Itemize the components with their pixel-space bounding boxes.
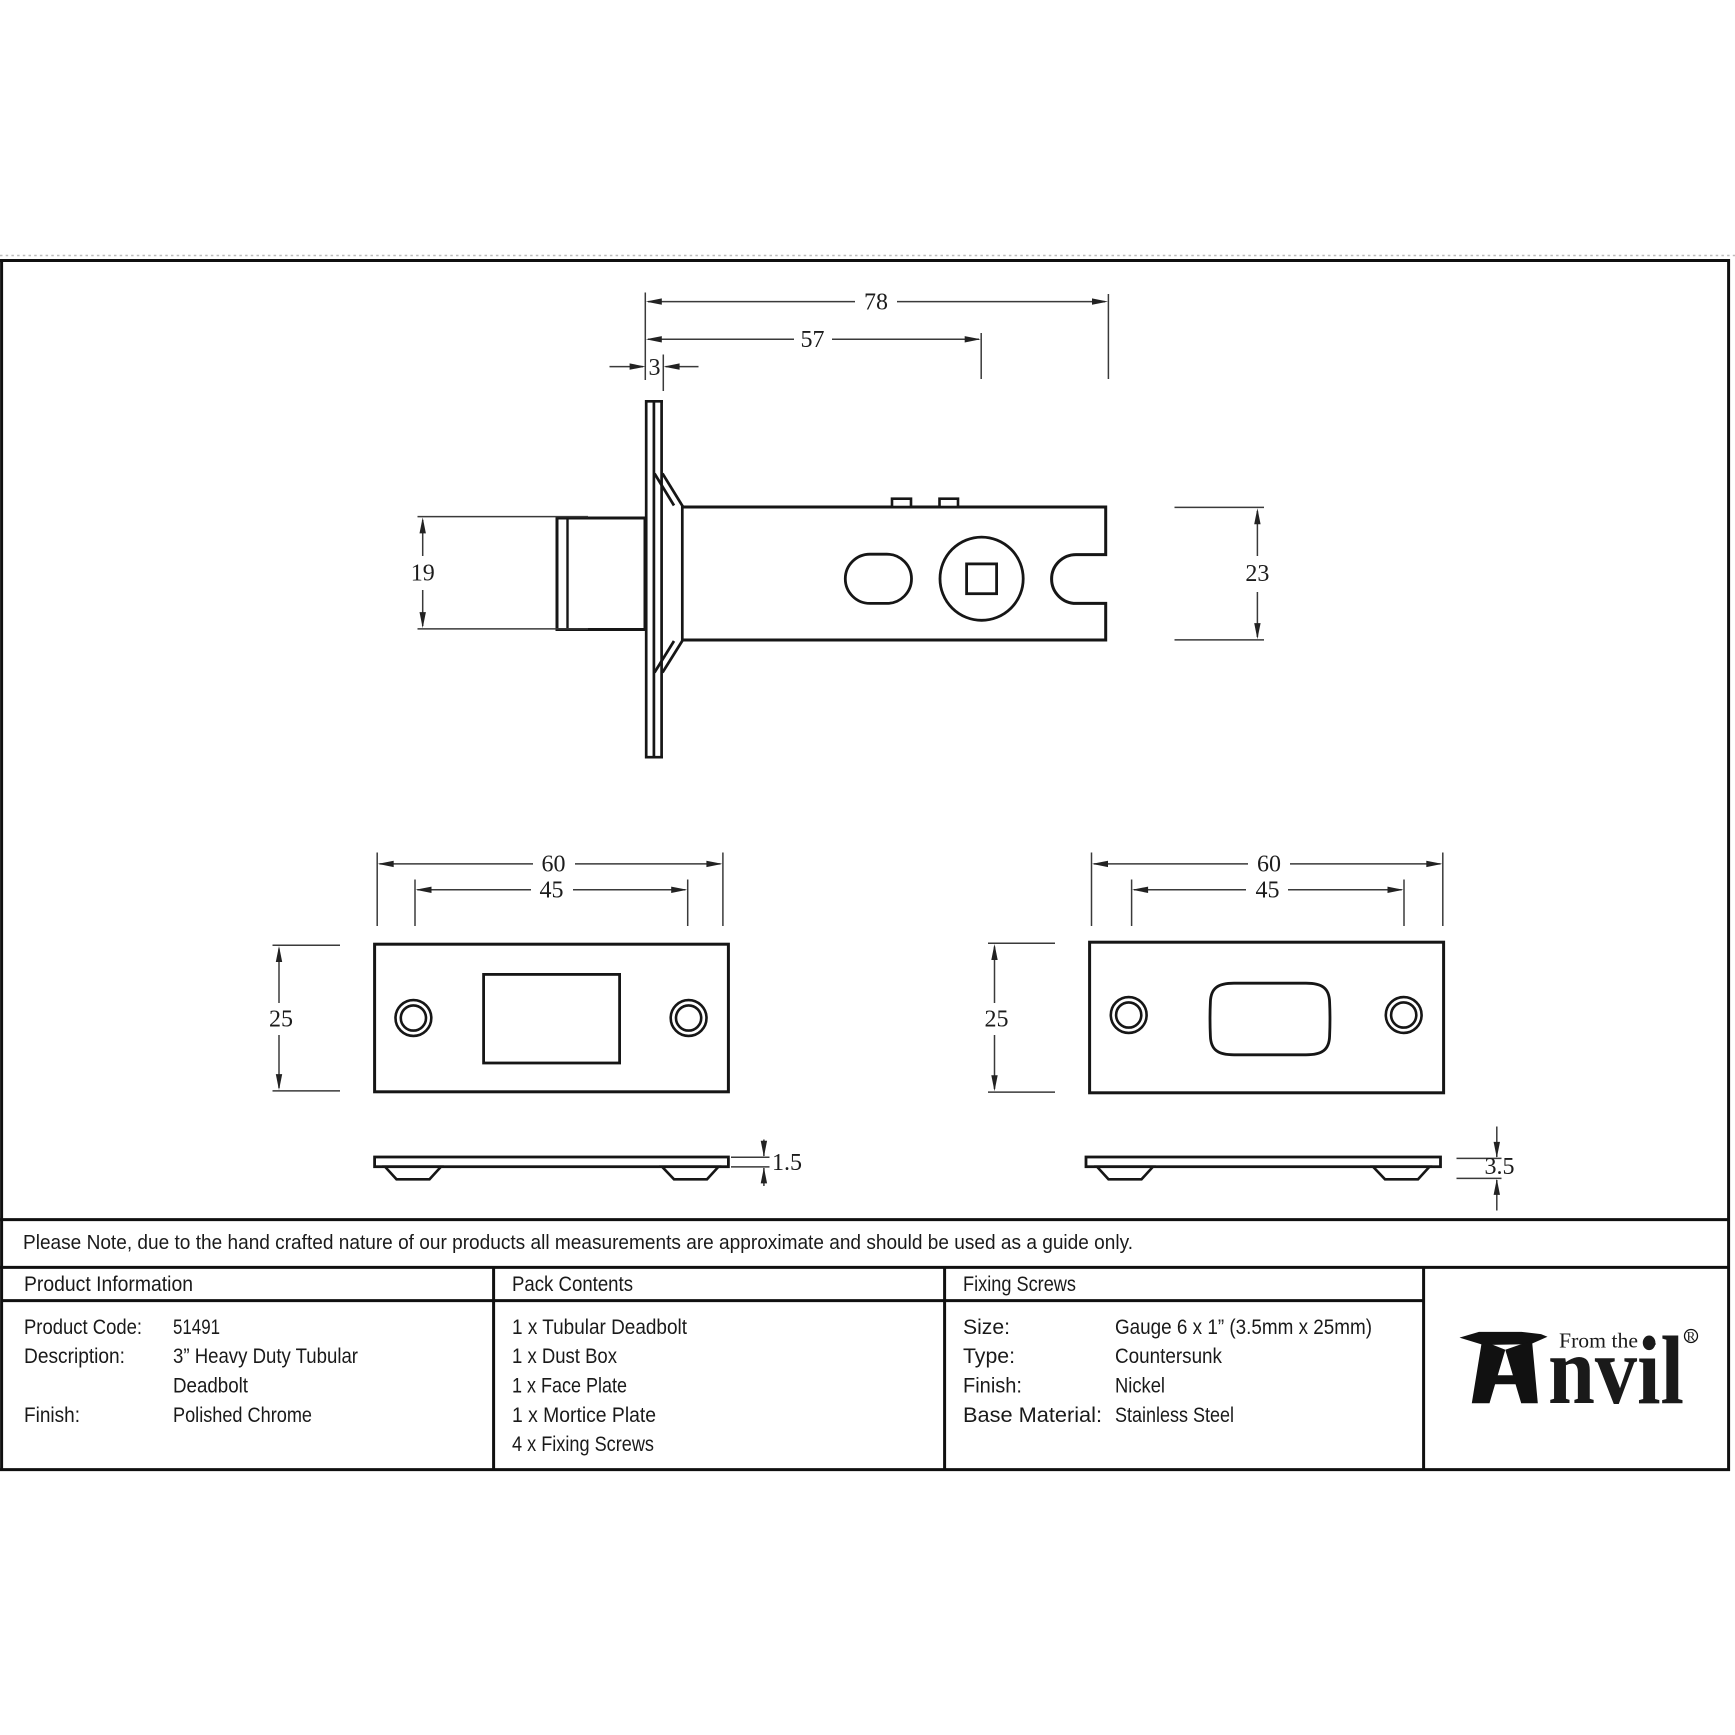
svg-text:Description:: Description: [24, 1345, 125, 1368]
svg-text:nvil: nvil [1548, 1317, 1684, 1424]
svg-text:Fixing Screws: Fixing Screws [963, 1273, 1076, 1296]
svg-text:Stainless Steel: Stainless Steel [1115, 1404, 1234, 1427]
svg-text:78: 78 [864, 290, 888, 316]
svg-text:Finish:: Finish: [24, 1404, 80, 1427]
svg-text:Polished Chrome: Polished Chrome [173, 1404, 312, 1427]
svg-text:45: 45 [1256, 878, 1280, 904]
svg-text:Base Material:: Base Material: [963, 1404, 1102, 1427]
svg-text:57: 57 [801, 327, 825, 353]
svg-text:Nickel: Nickel [1115, 1375, 1165, 1398]
svg-text:Type:: Type: [963, 1345, 1015, 1368]
svg-text:Pack Contents: Pack Contents [512, 1273, 633, 1296]
svg-text:60: 60 [542, 852, 566, 878]
svg-text:Size:: Size: [963, 1316, 1010, 1339]
svg-text:Countersunk: Countersunk [1115, 1345, 1222, 1368]
svg-text:3.5: 3.5 [1485, 1154, 1515, 1180]
svg-text:R: R [1687, 1329, 1696, 1344]
svg-text:1 x Tubular Deadbolt: 1 x Tubular Deadbolt [512, 1316, 687, 1339]
svg-text:Deadbolt: Deadbolt [173, 1375, 248, 1398]
svg-text:19: 19 [411, 561, 435, 587]
svg-text:1 x Mortice Plate: 1 x Mortice Plate [512, 1404, 656, 1427]
svg-text:Product Information: Product Information [24, 1273, 193, 1296]
svg-text:1.5: 1.5 [772, 1150, 802, 1176]
svg-text:3” Heavy Duty Tubular: 3” Heavy Duty Tubular [173, 1345, 358, 1368]
svg-text:4 x Fixing Screws: 4 x Fixing Screws [512, 1433, 654, 1456]
svg-text:1 x Dust Box: 1 x Dust Box [512, 1345, 617, 1368]
svg-text:45: 45 [540, 878, 564, 904]
svg-text:Product Code:: Product Code: [24, 1316, 142, 1339]
svg-text:60: 60 [1257, 852, 1281, 878]
svg-text:Gauge 6 x 1” (3.5mm x 25mm): Gauge 6 x 1” (3.5mm x 25mm) [1115, 1316, 1372, 1339]
svg-text:3: 3 [649, 355, 661, 381]
svg-text:51491: 51491 [173, 1316, 220, 1339]
svg-text:23: 23 [1245, 561, 1269, 587]
svg-text:Please Note, due to the hand c: Please Note, due to the hand crafted nat… [23, 1231, 1133, 1254]
svg-text:Finish:: Finish: [963, 1375, 1022, 1398]
svg-text:25: 25 [985, 1007, 1009, 1033]
svg-text:1 x Face Plate: 1 x Face Plate [512, 1375, 627, 1398]
svg-text:25: 25 [269, 1007, 293, 1033]
